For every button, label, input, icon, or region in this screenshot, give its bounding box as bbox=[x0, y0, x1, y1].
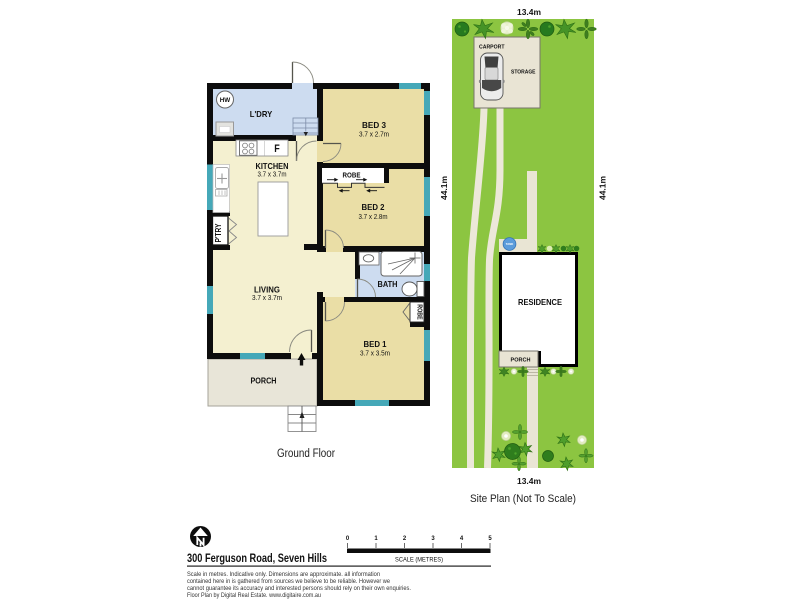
svg-text:F: F bbox=[274, 143, 280, 155]
svg-text:44.1m: 44.1m bbox=[440, 176, 449, 200]
svg-text:Floor Plan by Digital Real Est: Floor Plan by Digital Real Estate. www.d… bbox=[187, 593, 321, 599]
svg-text:PORCH: PORCH bbox=[251, 376, 277, 386]
svg-text:ROBE: ROBE bbox=[343, 173, 361, 180]
svg-text:3.7 x 3.7m: 3.7 x 3.7m bbox=[252, 295, 282, 302]
svg-text:SCALE (METRES): SCALE (METRES) bbox=[395, 557, 443, 564]
svg-text:300 Ferguson Road, Seven Hills: 300 Ferguson Road, Seven Hills bbox=[187, 553, 327, 565]
svg-text:Ground Floor: Ground Floor bbox=[277, 448, 335, 460]
svg-text:44.1m: 44.1m bbox=[599, 176, 608, 200]
svg-text:3.7 x 3.5m: 3.7 x 3.5m bbox=[360, 351, 390, 358]
svg-text:3.7 x 2.7m: 3.7 x 2.7m bbox=[359, 132, 389, 139]
svg-text:CARPORT: CARPORT bbox=[479, 45, 505, 51]
svg-text:L'DRY: L'DRY bbox=[250, 109, 273, 119]
svg-text:LIVING: LIVING bbox=[254, 285, 280, 295]
svg-text:TANK: TANK bbox=[506, 242, 514, 246]
svg-text:HW: HW bbox=[220, 97, 231, 104]
svg-text:Site Plan (Not To Scale): Site Plan (Not To Scale) bbox=[470, 493, 576, 505]
svg-text:13.4m: 13.4m bbox=[517, 8, 541, 17]
svg-text:contained here in is gathered: contained here in is gathered from sourc… bbox=[187, 579, 391, 585]
svg-text:KITCHEN: KITCHEN bbox=[256, 161, 289, 171]
svg-text:3.7 x 3.7m: 3.7 x 3.7m bbox=[258, 172, 287, 179]
svg-text:13.4m: 13.4m bbox=[517, 477, 541, 486]
svg-text:cannot guarantee its accuracy: cannot guarantee its accuracy and intere… bbox=[187, 586, 411, 592]
svg-text:3.7 x 2.8m: 3.7 x 2.8m bbox=[359, 214, 388, 221]
svg-text:ROBE: ROBE bbox=[416, 304, 425, 320]
svg-text:RESIDENCE: RESIDENCE bbox=[518, 297, 562, 307]
svg-text:Scale in metres. Indicative on: Scale in metres. Indicative only. Dimens… bbox=[187, 572, 380, 578]
svg-text:PORCH: PORCH bbox=[511, 358, 531, 364]
svg-text:BED 3: BED 3 bbox=[362, 120, 386, 130]
svg-text:BATH: BATH bbox=[378, 279, 398, 289]
svg-text:BED 1: BED 1 bbox=[364, 339, 387, 349]
svg-text:BED 2: BED 2 bbox=[362, 202, 385, 212]
svg-text:STORAGE: STORAGE bbox=[511, 70, 536, 76]
svg-text:P'TRY: P'TRY bbox=[213, 223, 223, 242]
